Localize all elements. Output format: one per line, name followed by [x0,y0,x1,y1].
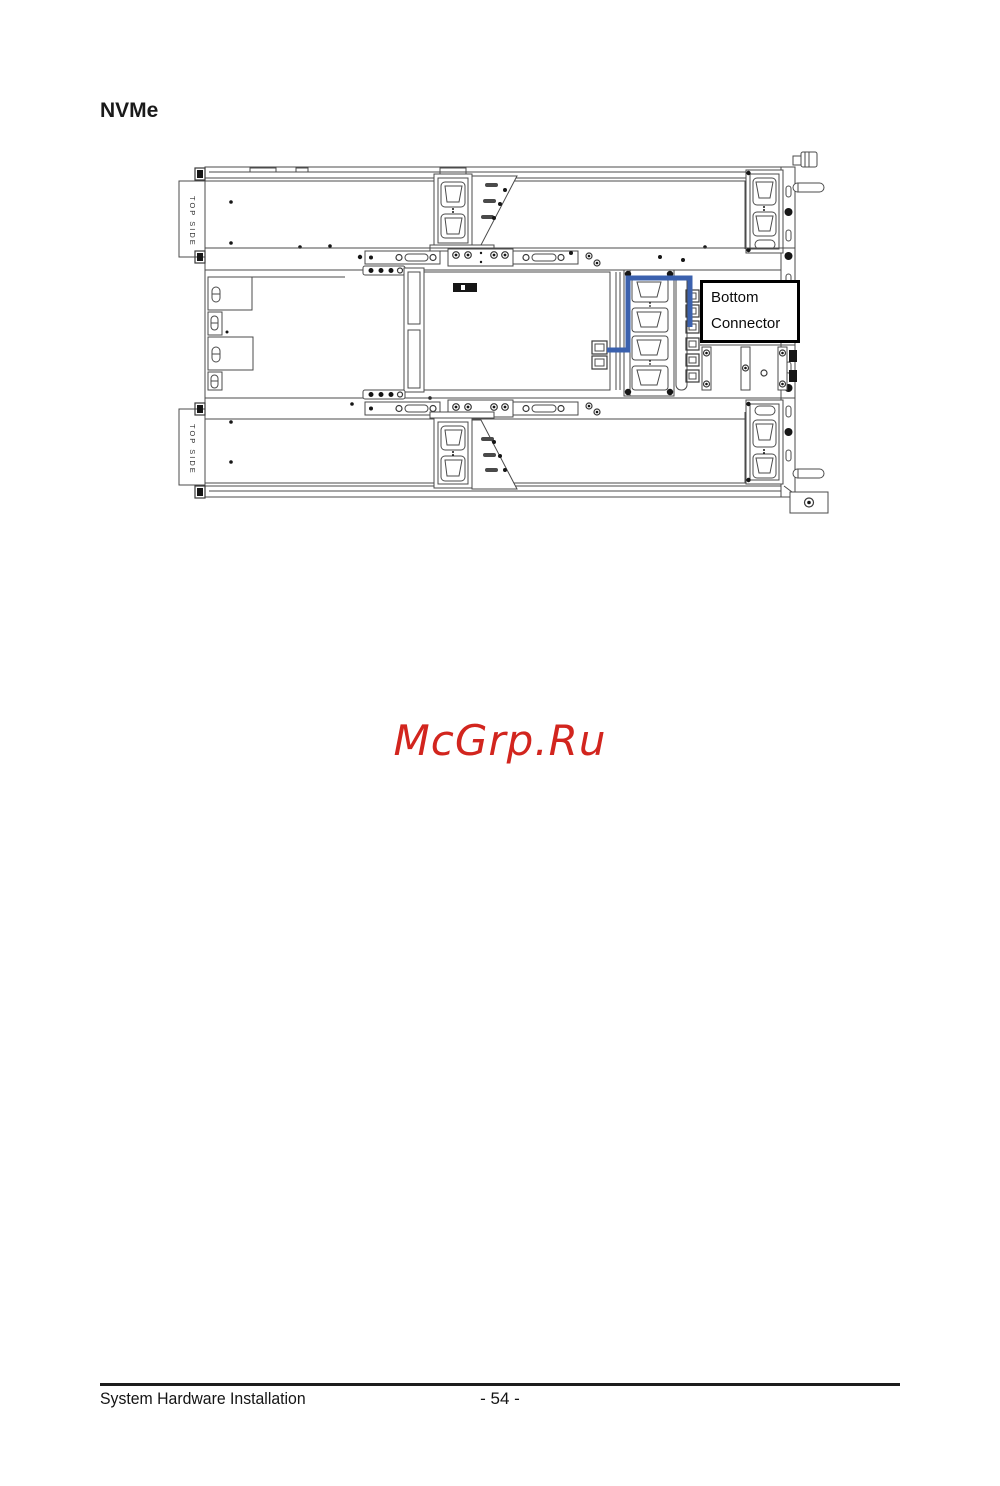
top-side-label-lower: TOP SIDE [188,424,197,475]
footer-rule [100,1383,900,1386]
fan-assembly-top-center [430,168,517,251]
fan-assembly-bottom-center [430,412,517,489]
fan-wall [624,270,687,396]
top-side-tab-upper: TOP SIDE [179,168,205,263]
handle-rod-top-right [793,183,824,192]
center-divider [404,268,424,392]
callout-line-1: Bottom [711,285,797,311]
watermark-text: McGrp.Ru [0,716,1000,765]
psu-bottom-right [746,400,783,484]
mid-rail-lower [205,390,795,419]
chassis-diagram-figure: TOP SIDE TOP SIDE [178,146,834,518]
top-side-label-upper: TOP SIDE [188,196,197,247]
psu-top-right [746,170,783,253]
mid-rail-upper [205,248,795,275]
left-bays [208,277,345,390]
handle-rod-bottom-right [793,469,824,478]
footer-page-number: - 54 - [0,1389,1000,1409]
motherboard [424,272,620,390]
top-side-tab-lower: TOP SIDE [179,403,205,498]
section-heading: NVMe [100,99,158,123]
thumbscrew-top-right [793,152,817,167]
callout-bottom-connector: Bottom Connector [700,280,800,343]
manual-page: NVMe [0,0,1000,1486]
callout-line-2: Connector [711,311,797,337]
